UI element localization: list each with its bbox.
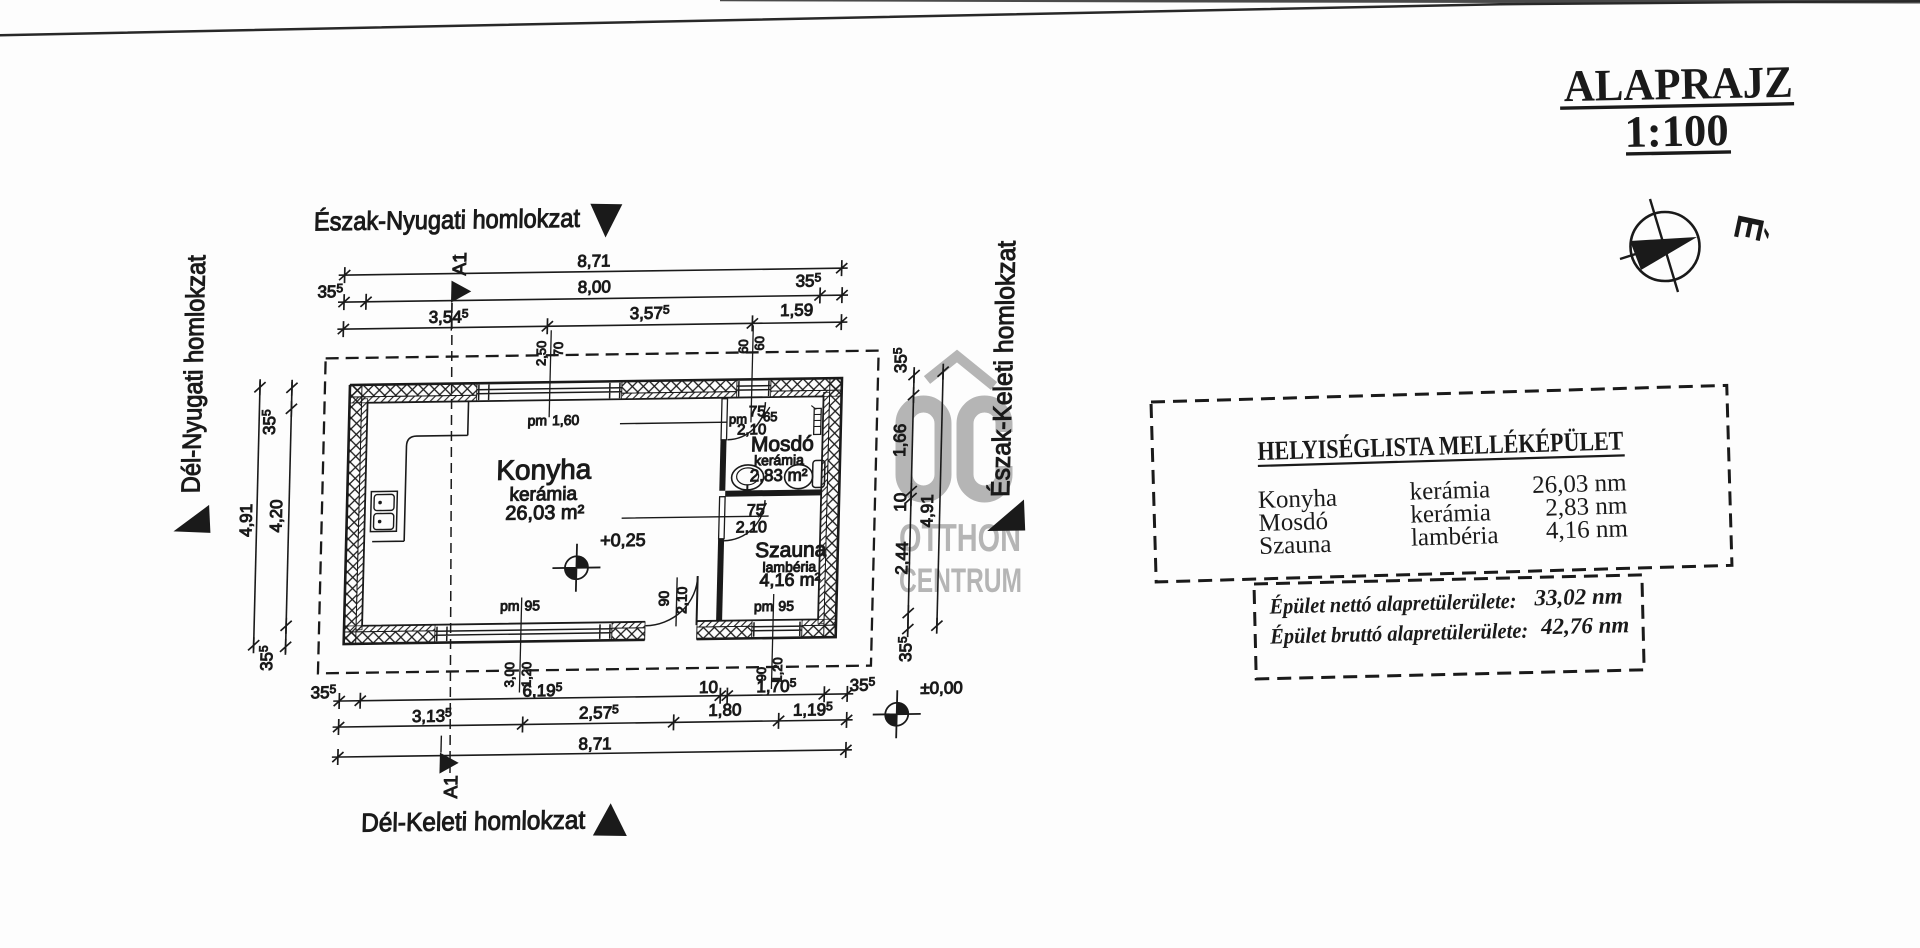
svg-text:pm: pm <box>729 411 747 426</box>
svg-text:10: 10 <box>699 678 718 697</box>
svg-text:Konyha: Konyha <box>496 454 592 486</box>
svg-text:lambéria: lambéria <box>1411 522 1499 552</box>
svg-text:Szauna: Szauna <box>1259 531 1332 560</box>
svg-text:95: 95 <box>524 597 540 613</box>
svg-text:pm: pm <box>527 412 547 428</box>
svg-text:3,00: 3,00 <box>502 662 518 688</box>
svg-text:4,16 nm: 4,16 nm <box>1546 515 1629 544</box>
svg-text:26,03 m²: 26,03 m² <box>505 502 585 525</box>
svg-text:60: 60 <box>736 339 751 354</box>
svg-text:±0,00: ±0,00 <box>920 678 963 698</box>
svg-text:75: 75 <box>747 502 765 519</box>
svg-text:95: 95 <box>778 598 794 614</box>
svg-text:33,02 nm: 33,02 nm <box>1533 583 1623 610</box>
svg-text:2,10: 2,10 <box>673 586 690 614</box>
svg-text:pm: pm <box>754 598 774 614</box>
svg-text:Dél-Nyugati homlokzat: Dél-Nyugati homlokzat <box>175 254 211 493</box>
svg-text:8,00: 8,00 <box>578 277 612 296</box>
svg-text:4,91: 4,91 <box>236 504 256 537</box>
svg-text:1,59: 1,59 <box>780 301 814 320</box>
svg-text:4,20: 4,20 <box>266 499 286 532</box>
svg-text:Észak-Keleti homlokzat: Észak-Keleti homlokzat <box>985 240 1021 497</box>
svg-text:1,80: 1,80 <box>708 700 742 719</box>
svg-text:4,91: 4,91 <box>917 494 937 527</box>
svg-text:A1: A1 <box>441 775 463 799</box>
svg-text:1,20: 1,20 <box>519 662 535 688</box>
svg-text:2,44: 2,44 <box>892 542 912 575</box>
svg-text:70: 70 <box>551 342 566 357</box>
svg-text:1,60: 1,60 <box>552 412 580 428</box>
svg-text:Észak-Nyugati homlokzat: Észak-Nyugati homlokzat <box>314 203 581 237</box>
svg-text:60: 60 <box>752 336 767 351</box>
svg-text:pm: pm <box>500 598 520 614</box>
svg-text:2,10: 2,10 <box>736 519 768 536</box>
svg-text:2,50: 2,50 <box>533 341 549 367</box>
svg-text:10: 10 <box>891 493 910 512</box>
svg-text:A1: A1 <box>450 252 472 276</box>
svg-text:CENTRUM: CENTRUM <box>899 562 1022 600</box>
svg-text:8,71: 8,71 <box>577 251 611 270</box>
svg-text:8,71: 8,71 <box>578 734 612 753</box>
svg-text:1,66: 1,66 <box>890 424 910 457</box>
svg-text:2,83 m²: 2,83 m² <box>750 466 808 486</box>
svg-text:65: 65 <box>763 409 778 424</box>
svg-text:1:100: 1:100 <box>1624 105 1729 157</box>
svg-text:+0,25: +0,25 <box>600 530 646 551</box>
svg-text:Dél-Keleti homlokzat: Dél-Keleti homlokzat <box>361 805 586 838</box>
svg-text:4,16 m²: 4,16 m² <box>759 569 821 590</box>
svg-text:90: 90 <box>655 590 671 606</box>
svg-text:90: 90 <box>754 667 769 682</box>
svg-text:1,20: 1,20 <box>770 657 786 683</box>
svg-text:42,76 nm: 42,76 nm <box>1540 612 1630 639</box>
